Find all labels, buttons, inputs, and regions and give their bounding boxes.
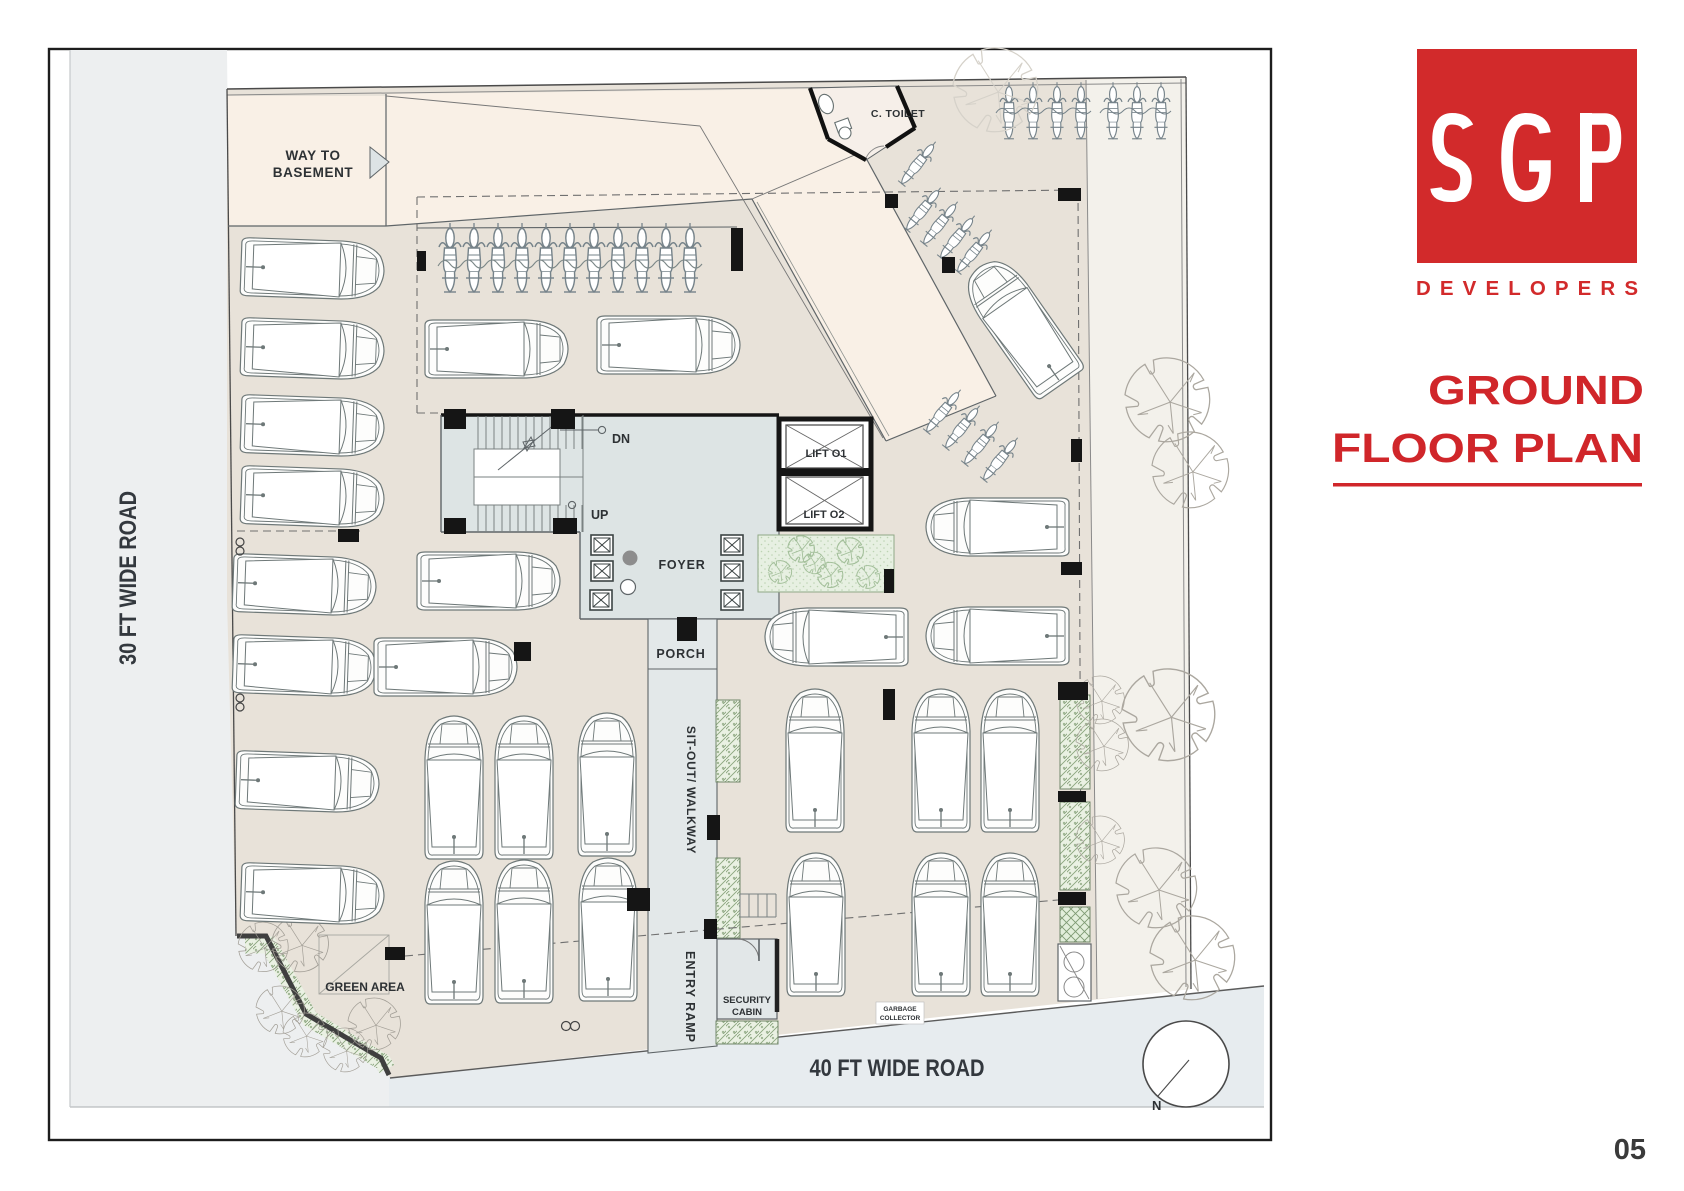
svg-text:WAY TO: WAY TO bbox=[285, 148, 340, 163]
svg-text:UP: UP bbox=[591, 508, 608, 522]
svg-text:DN: DN bbox=[612, 432, 630, 446]
svg-text:N: N bbox=[1152, 1098, 1161, 1113]
svg-text:BASEMENT: BASEMENT bbox=[273, 165, 354, 180]
svg-text:GROUND: GROUND bbox=[1428, 367, 1644, 413]
svg-text:CABIN: CABIN bbox=[732, 1007, 762, 1018]
svg-text:SIT-OUT/ WALKWAY: SIT-OUT/ WALKWAY bbox=[684, 726, 698, 854]
svg-text:GARBAGE: GARBAGE bbox=[883, 1006, 917, 1013]
svg-text:05: 05 bbox=[1614, 1134, 1646, 1166]
svg-text:ENTRY RAMP: ENTRY RAMP bbox=[683, 951, 697, 1043]
svg-text:LIFT O1: LIFT O1 bbox=[806, 448, 847, 460]
svg-text:LIFT O2: LIFT O2 bbox=[804, 509, 845, 521]
svg-text:30 FT WIDE ROAD: 30 FT WIDE ROAD bbox=[115, 491, 142, 665]
svg-text:40 FT WIDE ROAD: 40 FT WIDE ROAD bbox=[810, 1055, 985, 1082]
svg-text:FOYER: FOYER bbox=[658, 558, 705, 572]
svg-text:SECURITY: SECURITY bbox=[723, 995, 772, 1006]
svg-text:DEVELOPERS: DEVELOPERS bbox=[1416, 277, 1638, 300]
svg-text:COLLECTOR: COLLECTOR bbox=[880, 1015, 921, 1022]
svg-text:GREEN AREA: GREEN AREA bbox=[325, 980, 405, 994]
svg-text:FLOOR PLAN: FLOOR PLAN bbox=[1332, 425, 1643, 471]
svg-text:PORCH: PORCH bbox=[656, 647, 705, 661]
svg-text:C. TOILET: C. TOILET bbox=[871, 108, 925, 120]
